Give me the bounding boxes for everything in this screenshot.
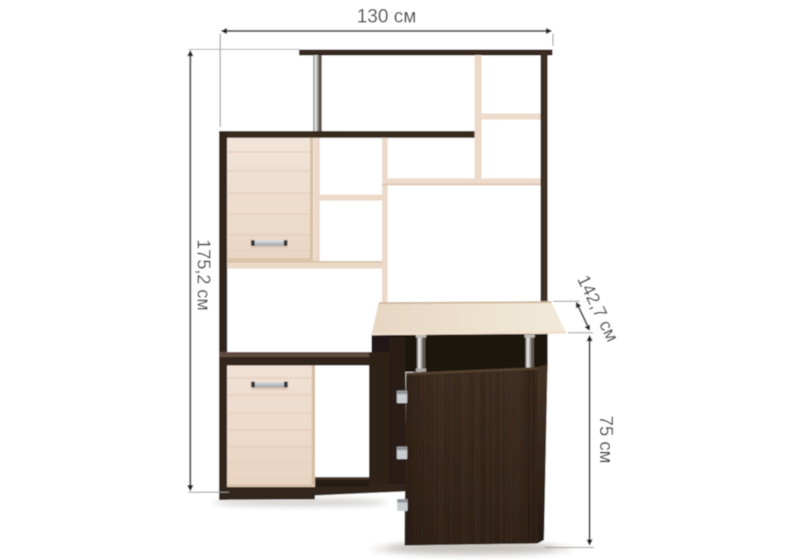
- svg-text:130 см: 130 см: [357, 7, 417, 28]
- svg-text:75 см: 75 см: [596, 416, 617, 464]
- svg-text:175,2 см: 175,2 см: [194, 239, 214, 310]
